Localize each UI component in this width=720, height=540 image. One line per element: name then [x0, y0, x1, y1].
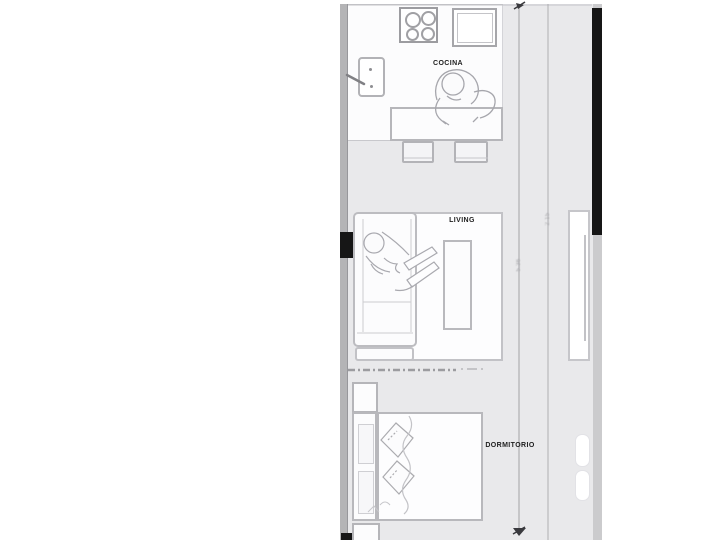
room-label-dormitorio: DORMITORIO: [478, 441, 542, 451]
room-label-living: LIVING: [434, 216, 490, 226]
standing-person-sketch: [436, 70, 495, 125]
dimension-value-inner: 5.36: [516, 255, 522, 275]
sofa-seam-lines: [357, 219, 413, 333]
sketch-overlay: [0, 0, 720, 540]
floor-plan-page: COCINA LIVING DORMITORIO 5.36 2.15: [0, 0, 720, 540]
bed-foot-sketch: [368, 502, 390, 512]
room-label-cocina: COCINA: [420, 59, 476, 69]
lounging-person-sketch: [364, 232, 439, 291]
faucet-icon: [347, 75, 364, 84]
dimension-value-outer: 2.15: [545, 209, 551, 229]
